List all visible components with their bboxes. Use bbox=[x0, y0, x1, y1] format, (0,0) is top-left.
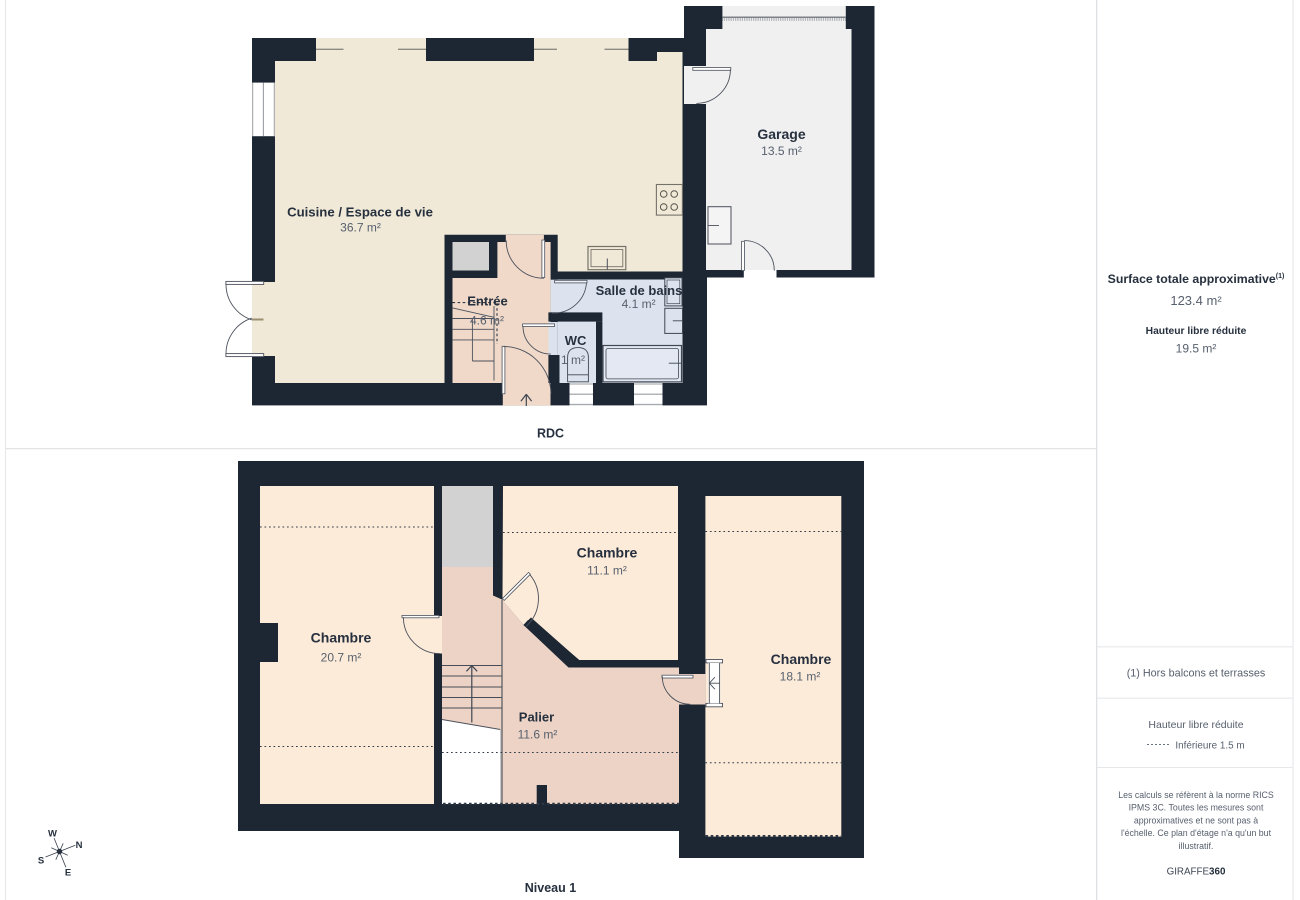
svg-text:19.5 m²: 19.5 m² bbox=[1176, 342, 1217, 356]
svg-text:Surface totale approximative(1: Surface totale approximative(1) bbox=[1108, 272, 1285, 286]
svg-text:18.1 m²: 18.1 m² bbox=[780, 670, 821, 684]
svg-text:GIRAFFE360: GIRAFFE360 bbox=[1167, 867, 1226, 878]
svg-text:Entrée: Entrée bbox=[467, 294, 507, 309]
svg-text:Niveau 1: Niveau 1 bbox=[525, 881, 576, 895]
svg-text:4.6 m²: 4.6 m² bbox=[470, 314, 504, 328]
svg-text:36.7 m²: 36.7 m² bbox=[340, 221, 381, 235]
svg-text:4.1 m²: 4.1 m² bbox=[622, 297, 656, 311]
svg-text:Hauteur libre réduite: Hauteur libre réduite bbox=[1146, 326, 1247, 337]
svg-text:N: N bbox=[76, 840, 83, 851]
svg-text:13.5 m²: 13.5 m² bbox=[761, 144, 802, 158]
svg-text:l'échelle. Ce plan d'étage n'a: l'échelle. Ce plan d'étage n'a qu'un but bbox=[1121, 828, 1272, 838]
svg-text:E: E bbox=[65, 867, 71, 878]
svg-text:Chambre: Chambre bbox=[311, 629, 372, 645]
svg-text:IPMS 3C. Toutes les mesures so: IPMS 3C. Toutes les mesures sont bbox=[1129, 803, 1264, 813]
svg-text:(1) Hors balcons et terrasses: (1) Hors balcons et terrasses bbox=[1127, 668, 1266, 680]
svg-text:1 m²: 1 m² bbox=[561, 353, 585, 367]
svg-text:Salle de bains: Salle de bains bbox=[596, 283, 683, 298]
svg-text:Inférieure 1.5 m: Inférieure 1.5 m bbox=[1175, 741, 1244, 752]
svg-text:WC: WC bbox=[565, 333, 587, 348]
svg-text:Cuisine / Espace de vie: Cuisine / Espace de vie bbox=[287, 205, 433, 220]
svg-text:Chambre: Chambre bbox=[577, 545, 638, 561]
svg-text:123.4 m²: 123.4 m² bbox=[1170, 293, 1222, 308]
svg-text:illustratif.: illustratif. bbox=[1179, 841, 1214, 851]
svg-text:Hauteur libre réduite: Hauteur libre réduite bbox=[1148, 719, 1243, 731]
svg-text:Palier: Palier bbox=[519, 710, 554, 725]
svg-text:11.6 m²: 11.6 m² bbox=[518, 728, 558, 742]
svg-text:RDC: RDC bbox=[537, 427, 564, 441]
svg-text:Chambre: Chambre bbox=[771, 651, 832, 667]
svg-text:approximatives et ne sont pas: approximatives et ne sont pas à bbox=[1134, 815, 1258, 825]
svg-text:W: W bbox=[48, 829, 57, 840]
svg-text:S: S bbox=[38, 856, 44, 867]
svg-text:Les calculs se réfèrent à la n: Les calculs se réfèrent à la norme RICS bbox=[1118, 790, 1274, 800]
svg-text:Garage: Garage bbox=[757, 126, 805, 142]
svg-text:20.7 m²: 20.7 m² bbox=[321, 651, 362, 665]
svg-text:11.1 m²: 11.1 m² bbox=[587, 564, 627, 578]
